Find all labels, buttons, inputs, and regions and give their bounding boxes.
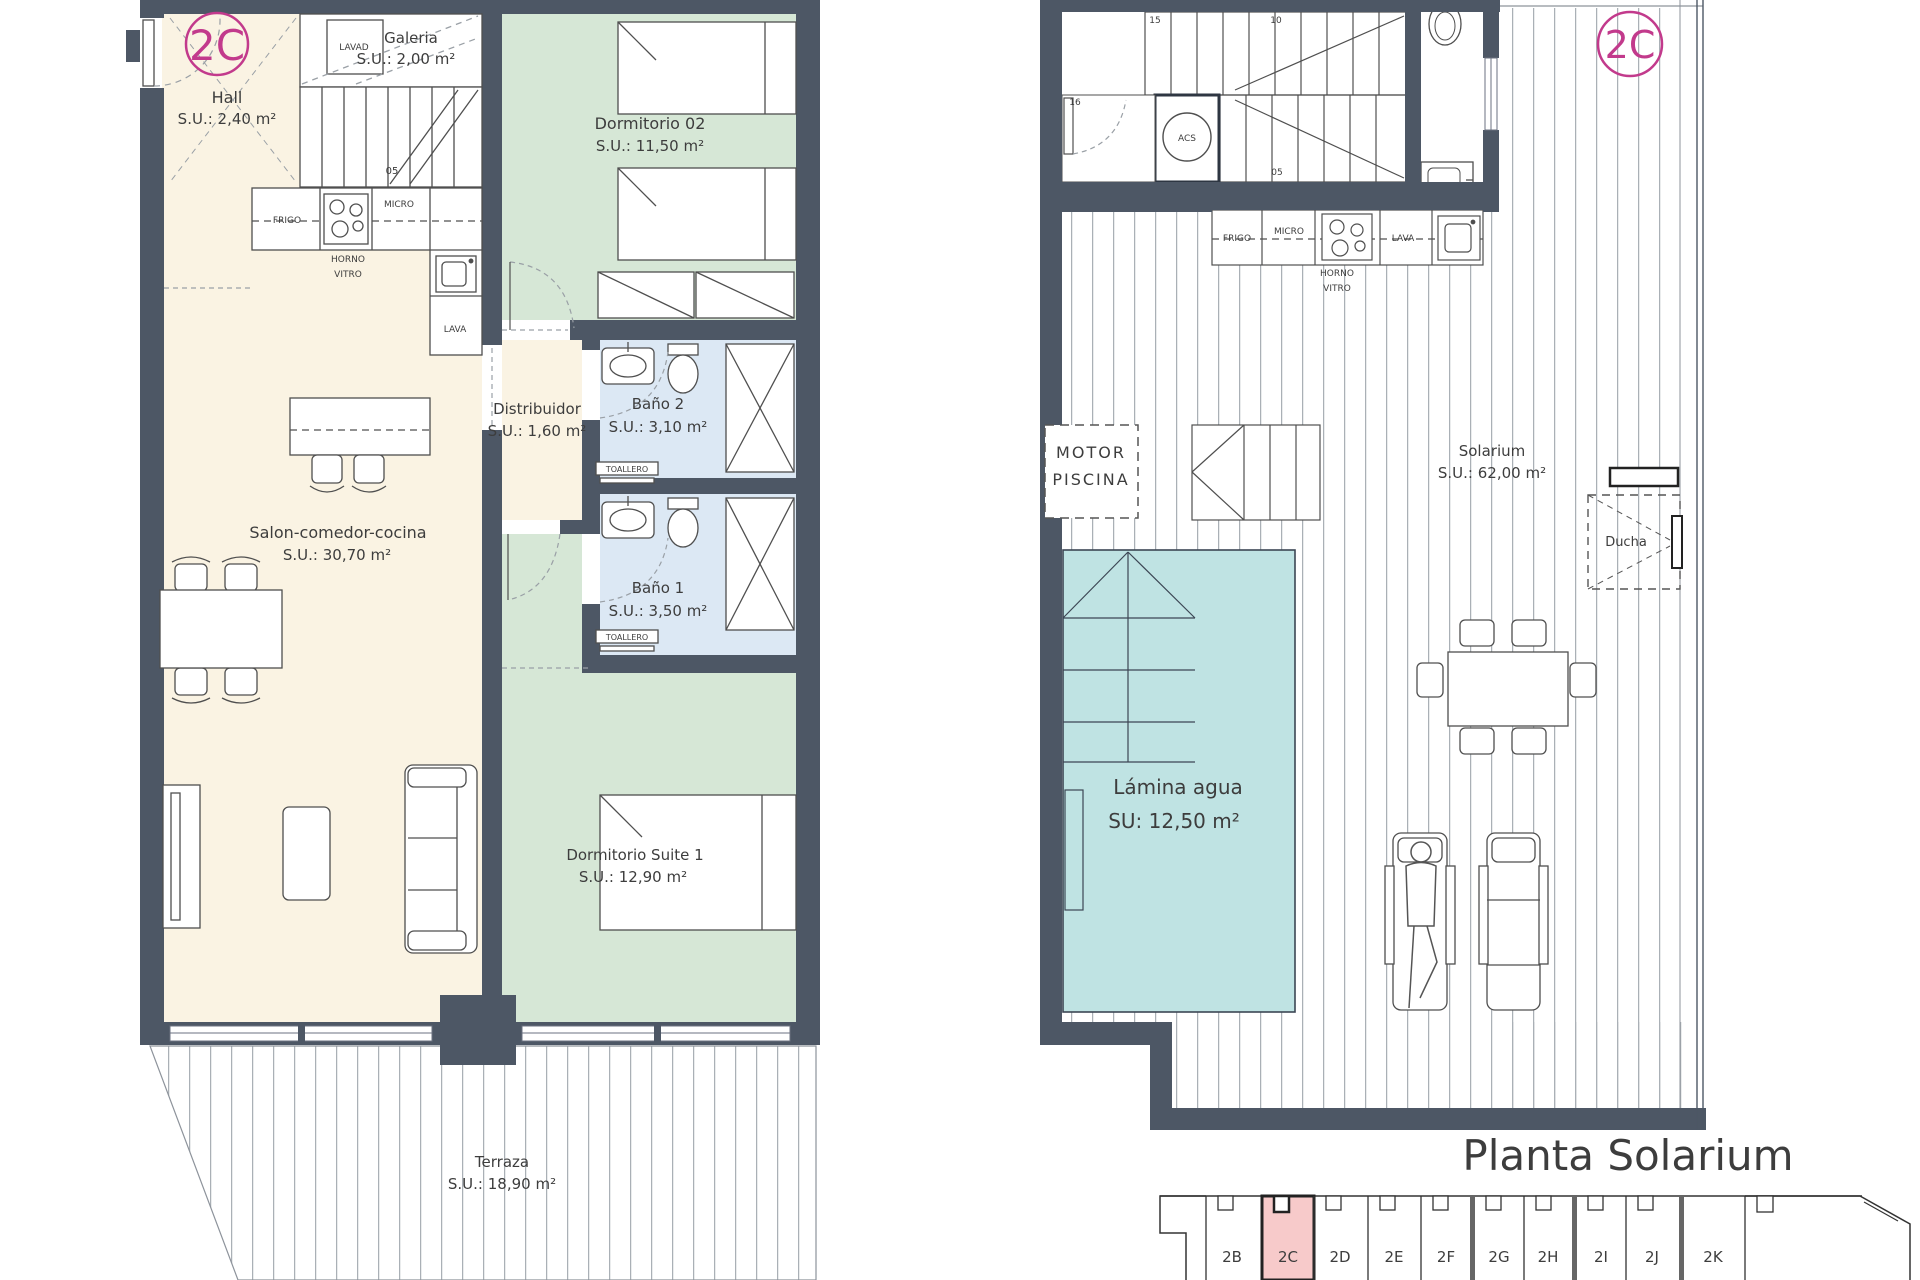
room-area-solarium: S.U.: 62,00 m² [1438, 464, 1546, 482]
appliance-label-vitro: VITRO [334, 270, 362, 280]
locator-unit-2d: 2D [1329, 1248, 1350, 1266]
motor-label-2: PISCINA [1052, 470, 1129, 489]
appliance-label-micro: MICRO [1274, 227, 1304, 237]
room-label-salon: Salon-comedor-cocina [249, 523, 426, 542]
motor-label-1: MOTOR [1056, 443, 1126, 462]
pool-label: Lámina agua [1113, 775, 1243, 799]
room-label-bano2: Baño 2 [632, 395, 684, 413]
sofa [405, 765, 477, 953]
appliance-label-vitro: VITRO [1323, 284, 1351, 294]
room-label-bano1: Baño 1 [632, 579, 684, 597]
locator-unit-2h: 2H [1538, 1248, 1559, 1266]
room-label-ducha: Ducha [1605, 535, 1647, 550]
left-plan: 2C Hall S.U.: 2,40 m² LAVAD Galeria S.U.… [126, 0, 820, 1280]
stair-number: 05 [386, 166, 399, 177]
bathroom-window [1485, 58, 1497, 130]
appliance-label-lava: LAVA [1392, 234, 1415, 244]
toilet-tank [668, 498, 698, 509]
appliance-label-horno: HORNO [331, 255, 365, 265]
toilet-tank [668, 344, 698, 355]
top-bathroom [1419, 0, 1483, 200]
room-label-galeria: Galeria [384, 29, 438, 47]
locator-unit-2i: 2I [1594, 1248, 1608, 1266]
locator-unit-2e: 2E [1384, 1248, 1403, 1266]
room-label-suite: Dormitorio Suite 1 [566, 846, 703, 864]
locator-unit-2f: 2F [1437, 1248, 1455, 1266]
room-label-solarium: Solarium [1459, 442, 1526, 460]
stair-number: 15 [1149, 16, 1160, 26]
stair-number: 16 [1069, 98, 1081, 108]
dormitorio02-furniture [598, 22, 796, 318]
stool [354, 455, 384, 483]
unit-badge-label: 2C [189, 21, 245, 70]
appliance-label-micro: MICRO [384, 200, 414, 210]
sheet-title-block: Planta Solarium [1462, 1131, 1793, 1180]
room-area-bano1: S.U.: 3,50 m² [609, 602, 708, 620]
outdoor-kitchen [1212, 210, 1483, 265]
pool-area: SU: 12,50 m² [1108, 809, 1240, 833]
cooktop [1322, 214, 1372, 260]
room-area-galeria: S.U.: 2,00 m² [357, 50, 456, 68]
bed-single [618, 168, 796, 260]
locator-unit-2b: 2B [1222, 1248, 1242, 1266]
unit-badge-label: 2C [1605, 23, 1656, 67]
room-area-distribuidor: S.U.: 1,60 m² [488, 422, 587, 440]
stair-number: 10 [1270, 16, 1282, 26]
room-area-terraza: S.U.: 18,90 m² [448, 1175, 556, 1193]
toallero-label: TOALLERO [605, 633, 648, 642]
locator-unit-2c: 2C [1278, 1248, 1298, 1266]
core-entry [1062, 95, 1155, 182]
appliance-label-frigo: FRIGO [1223, 234, 1251, 244]
table [1448, 652, 1568, 726]
toilet [668, 355, 698, 393]
acs-label: ACS [1178, 134, 1196, 144]
locator-unit-2g: 2G [1488, 1248, 1509, 1266]
floorplan-sheet: 2C Hall S.U.: 2,40 m² LAVAD Galeria S.U.… [0, 0, 1920, 1280]
shower-fixture [1672, 516, 1682, 568]
plan-title: Planta Solarium [1462, 1131, 1793, 1180]
room-label-hall: Hall [212, 88, 243, 107]
tv-unit [163, 785, 200, 928]
unit-badge-left: 2C [186, 13, 248, 75]
appliance-label-horno: HORNO [1320, 269, 1354, 279]
locator-unit-2k: 2K [1703, 1248, 1724, 1266]
solarium-stairs [1192, 425, 1320, 520]
cooktop [324, 194, 368, 244]
room-label-distribuidor: Distribuidor [493, 400, 582, 418]
toilet [668, 509, 698, 547]
locator-unit-2j: 2J [1645, 1248, 1659, 1266]
appliance-label-lava: LAVA [444, 325, 467, 335]
room-area-bano2: S.U.: 3,10 m² [609, 418, 708, 436]
right-plan: 2C 15 10 16 05 ACS FRIGO MICRO HORNO VIT… [1040, 0, 1706, 1130]
appliance-label-frigo: FRIGO [273, 216, 301, 226]
stool [312, 455, 342, 483]
room-area-suite: S.U.: 12,90 m² [579, 868, 687, 886]
room-area-salon: S.U.: 30,70 m² [283, 546, 391, 564]
toallero-label: TOALLERO [605, 465, 648, 474]
floorplan-drawing: 2C Hall S.U.: 2,40 m² LAVAD Galeria S.U.… [0, 0, 1920, 1280]
bench [1610, 468, 1678, 486]
room-area-dorm02: S.U.: 11,50 m² [596, 137, 704, 155]
room-area-hall: S.U.: 2,40 m² [178, 110, 277, 128]
coffee-table [283, 807, 330, 900]
stair-number: 05 [1271, 168, 1282, 178]
room-label-terraza: Terraza [474, 1153, 529, 1171]
room-label-dorm02: Dormitorio 02 [595, 114, 706, 133]
bed-single [618, 22, 796, 114]
